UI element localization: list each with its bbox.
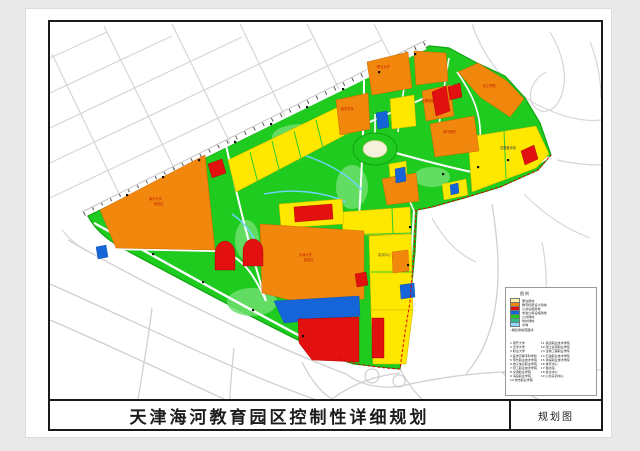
page-title: 天津海河教育园区控制性详细规划: [130, 403, 430, 428]
legend-facilities-list: 1 南开大学2 天津大学3 职业大学4 医学高等专科学校5 现代职业技术学院6 …: [510, 341, 592, 382]
sheet-label-cell: 规划图: [509, 401, 601, 429]
facilities-column-left: 1 南开大学2 天津大学3 职业大学4 医学高等专科学校5 现代职业技术学院6 …: [510, 341, 537, 382]
legend-item: 水域: [510, 323, 592, 326]
facility-item: 19 公共实训中心: [541, 374, 570, 378]
legend-box: 图例 居住用地教育科研设计用地公共设施用地市政公用设施用地公共绿地防护绿地水域 …: [505, 287, 597, 396]
title-cell: 天津海河教育园区控制性详细规划: [50, 401, 509, 429]
roundabout: [353, 133, 397, 165]
legend-title: 图例: [520, 291, 592, 297]
page: { "title_block": { "title": "天津海河教育园区控制性…: [0, 0, 640, 451]
facilities-column-right: 11 铁道职业技术学院12 国土资源职业学院13 生物工程职业学院14 石油职业…: [541, 341, 570, 382]
legend-items: 居住用地教育科研设计用地公共设施用地市政公用设施用地公共绿地防护绿地水域: [510, 299, 592, 326]
facility-item: 10 城市职业学院: [510, 378, 537, 382]
sheet-label: 规划图: [538, 408, 574, 423]
title-block: 天津海河教育园区控制性详细规划 规划图: [50, 399, 601, 429]
legend-swatch: [510, 322, 520, 327]
legend-boundary-note: -- 规划用地范围线: [510, 327, 592, 332]
